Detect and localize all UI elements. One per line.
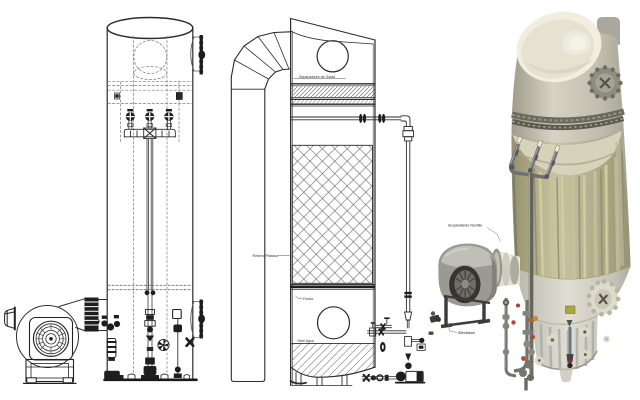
svg-text:Separadores de Gotas: Separadores de Gotas <box>299 75 335 79</box>
svg-text:Acoplamiento Flexible: Acoplamiento Flexible <box>448 223 482 227</box>
svg-text:Fondo: Fondo <box>303 297 313 301</box>
svg-text:Relleno Plástico: Relleno Plástico <box>253 254 279 258</box>
svg-text:Silentblock: Silentblock <box>458 331 475 335</box>
svg-text:Nivel Agua: Nivel Agua <box>298 339 314 343</box>
